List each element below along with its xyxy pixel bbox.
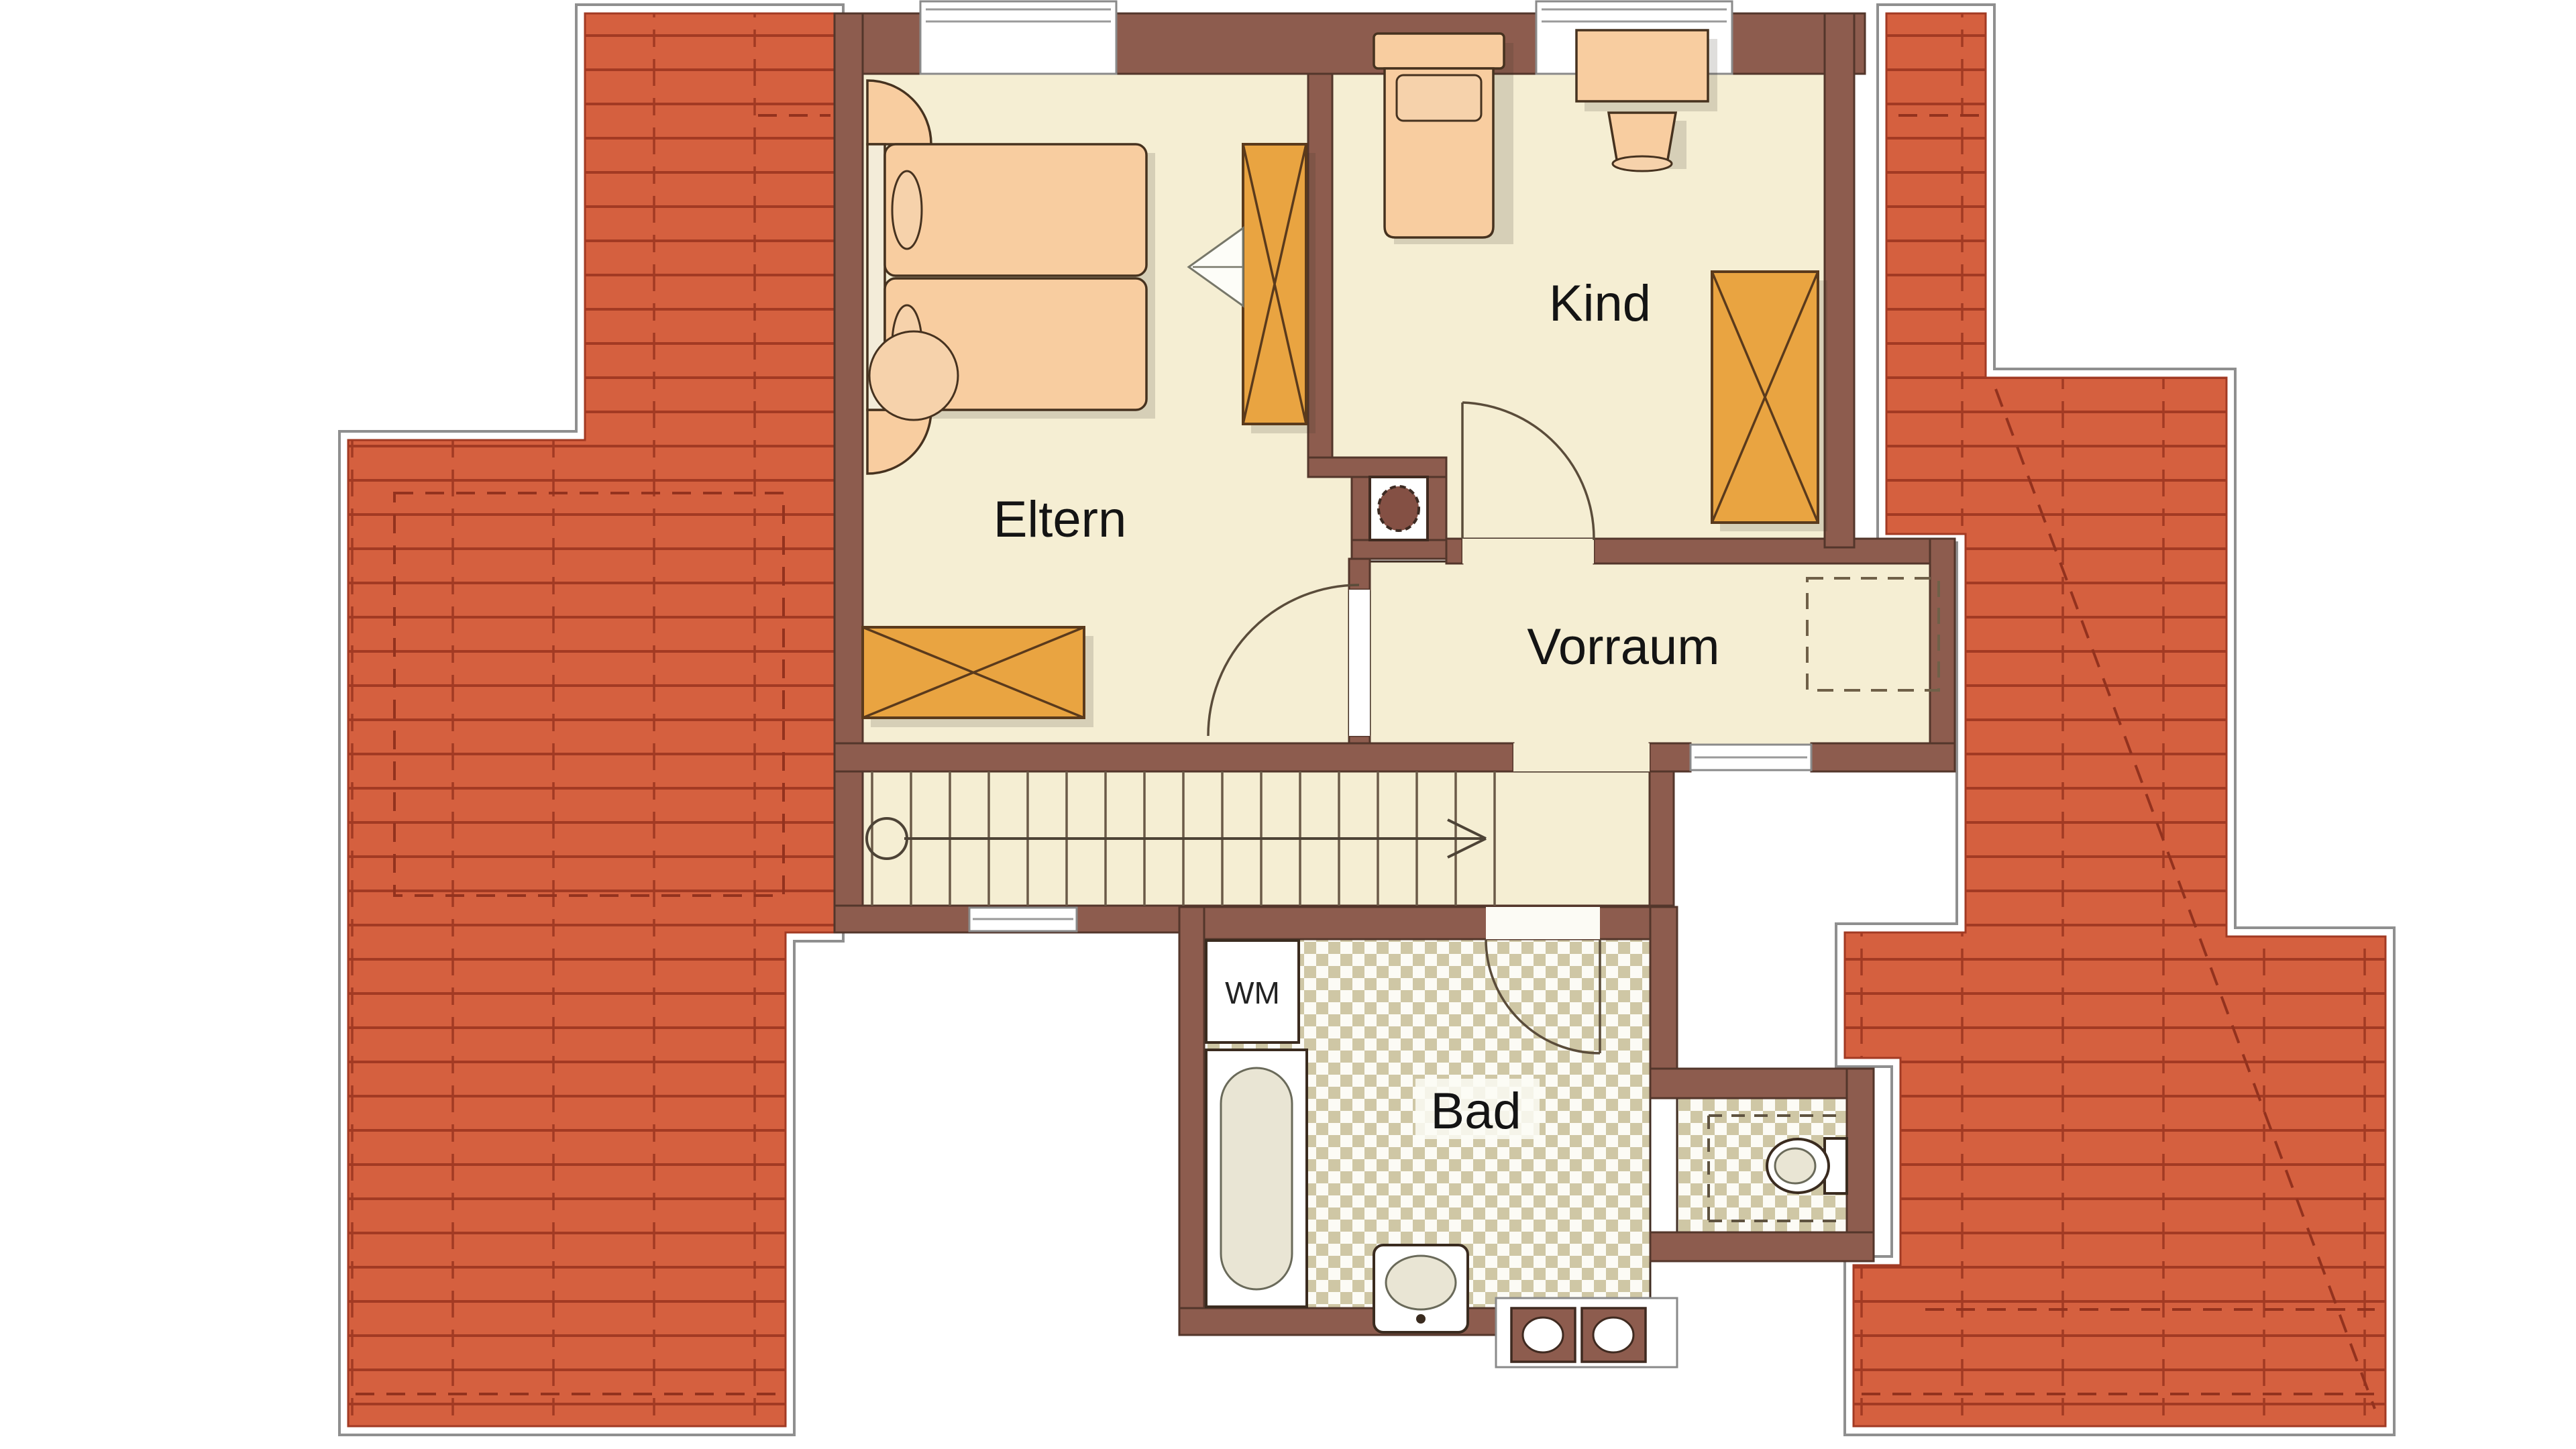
left-roof	[348, 13, 835, 1426]
washbasin[interactable]	[1374, 1245, 1468, 1332]
eltern-door-opening	[1349, 590, 1370, 736]
wall-vorraum-bottom-right	[1811, 743, 1955, 771]
bed-mattress-left	[885, 144, 1146, 276]
floorplan-drawing: WM Eltern Kind Vorraum Bad	[0, 0, 2576, 1449]
label-vorraum: Vorraum	[1527, 619, 1719, 676]
kind-single-bed[interactable]	[1374, 34, 1504, 237]
label-bad: Bad	[1430, 1083, 1521, 1140]
desk	[1576, 30, 1708, 101]
wall-vorraum-top	[1594, 539, 1955, 563]
washing-machine-label: WM	[1225, 975, 1280, 1010]
wall-chimney-top	[1308, 458, 1446, 477]
wall-eltern-bottom	[835, 743, 1513, 771]
bed-headboard	[1374, 34, 1504, 68]
bedside-stool	[869, 331, 958, 420]
floorplan-page: WM Eltern Kind Vorraum Bad	[0, 0, 2576, 1449]
chimney	[1370, 477, 1428, 540]
chair-base	[1613, 156, 1672, 171]
window-eltern-top	[920, 1, 1116, 74]
wall-vorraum-bottom-left	[1650, 743, 1690, 771]
left-roof-surface	[348, 13, 835, 1426]
wall-alcove-top	[1650, 1069, 1874, 1098]
bed-pillow-1	[892, 171, 922, 249]
wall-bad-top	[1179, 907, 1677, 939]
bed-pillow	[1397, 75, 1481, 121]
kind-wardrobe[interactable]	[1712, 272, 1818, 523]
chair-seat	[1609, 113, 1676, 160]
wall-bad-left	[1179, 907, 1204, 1335]
bathtub[interactable]	[1206, 1050, 1307, 1307]
label-eltern: Eltern	[994, 491, 1127, 548]
wall-vorraum-right	[1930, 539, 1955, 771]
kind-door-opening	[1462, 539, 1594, 563]
wall-left-exterior	[835, 13, 863, 932]
wall-chimney-bottom	[1352, 540, 1446, 559]
landing-opening	[1513, 743, 1650, 771]
wall-alcove-bottom	[1650, 1232, 1874, 1261]
bad-door-opening	[1486, 907, 1600, 939]
chimney-flue-icon	[1379, 486, 1419, 531]
wall-kind-right	[1825, 13, 1854, 547]
double-basin-window	[1496, 1298, 1677, 1367]
toilet[interactable]	[1767, 1138, 1847, 1193]
label-kind: Kind	[1549, 275, 1651, 332]
eltern-low-wardrobe[interactable]	[863, 627, 1084, 718]
wall-vorraum-top-left-stub	[1446, 539, 1462, 563]
